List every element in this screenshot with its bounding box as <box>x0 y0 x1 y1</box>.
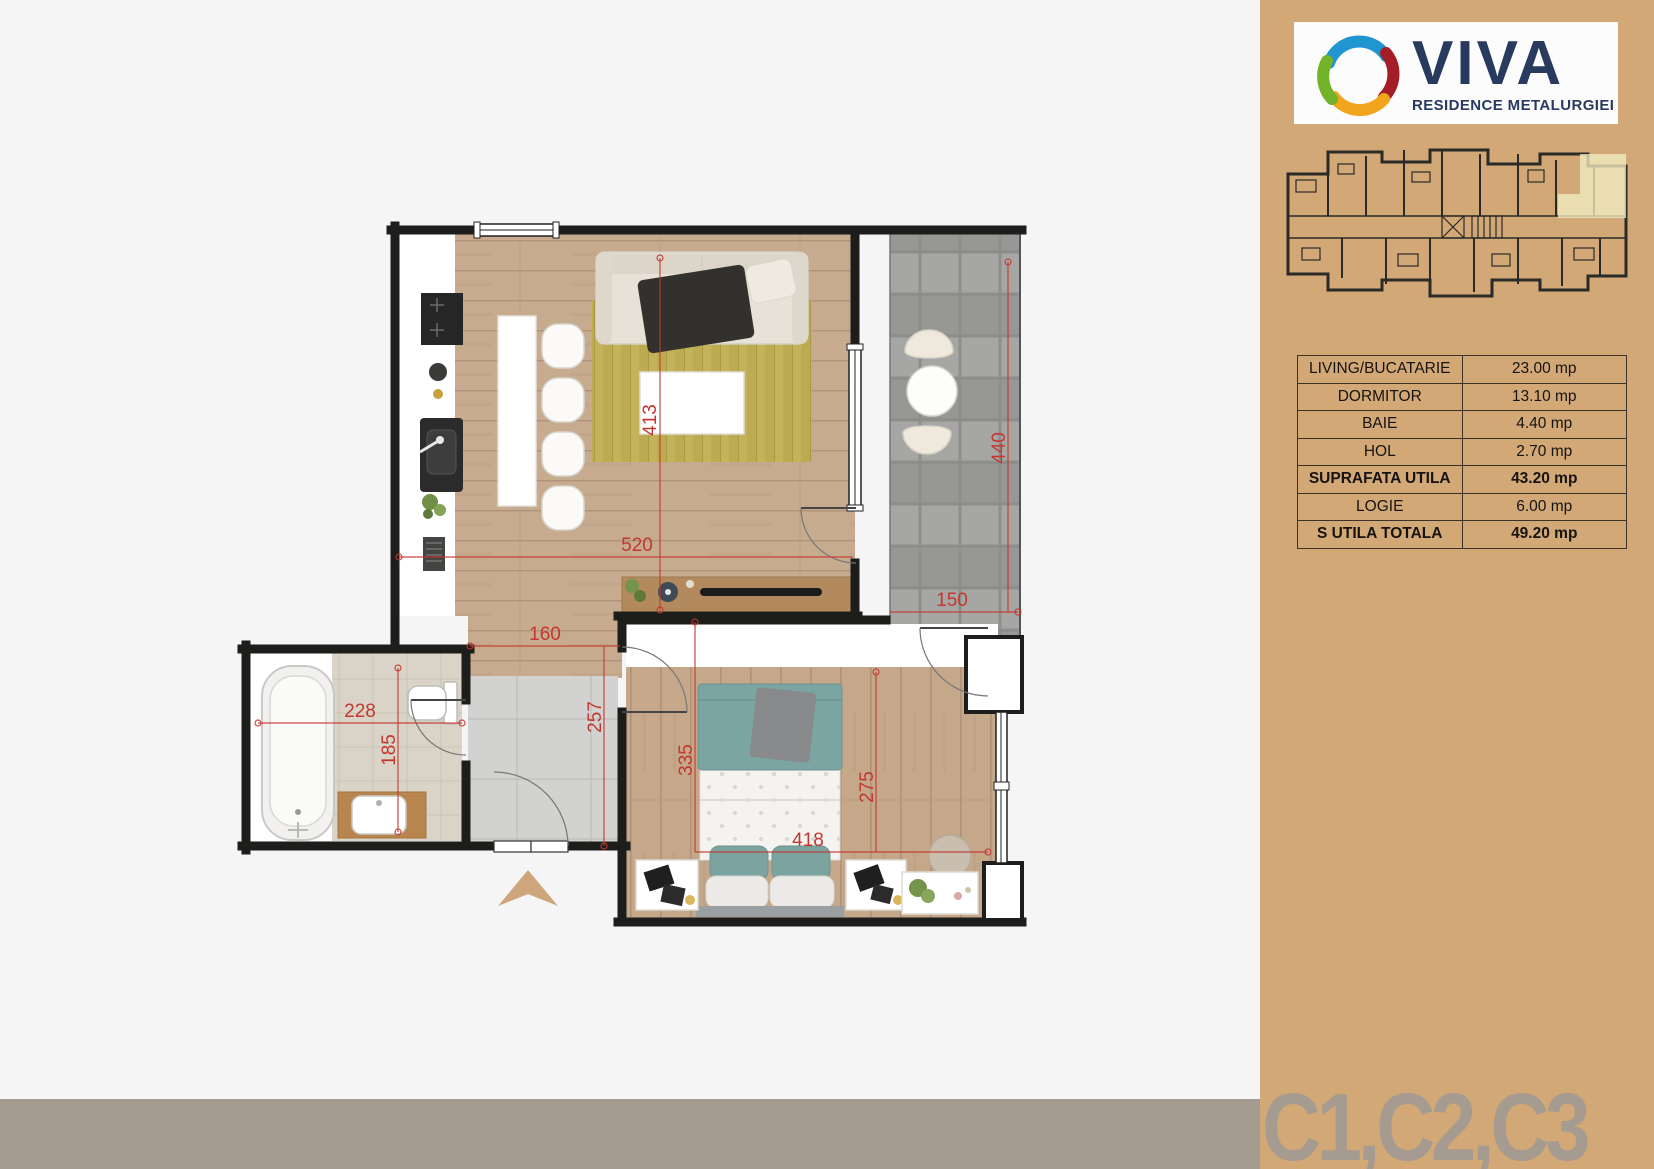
headboard <box>696 906 844 917</box>
sidebar: VIVA RESIDENCE METALURGIEI <box>1260 0 1654 1169</box>
brand-tagline: RESIDENCE METALURGIEI <box>1412 97 1614 114</box>
bench <box>902 872 978 914</box>
room-label: LIVING/BUCATARIE <box>1298 356 1463 383</box>
dimension-label: 335 <box>676 744 697 776</box>
floor-plan: 413 520 440 150 160 257 228 185 335 275 … <box>0 0 1260 1169</box>
room-area: 6.00 mp <box>1463 494 1627 521</box>
radiator <box>423 537 445 571</box>
dimension-label: 150 <box>936 590 968 611</box>
floor-plan-pane: 413 520 440 150 160 257 228 185 335 275 … <box>0 0 1260 1169</box>
room-label: HOL <box>1298 439 1463 466</box>
table-row: SUPRAFATA UTILA 43.20 mp <box>1298 466 1626 494</box>
dimension-label: 520 <box>621 535 653 556</box>
room-area: 49.20 mp <box>1463 521 1627 548</box>
dining-chair <box>542 486 584 530</box>
sink-vanity <box>338 792 426 838</box>
table-row: BAIE 4.40 mp <box>1298 411 1626 439</box>
table-row: LOGIE 6.00 mp <box>1298 494 1626 522</box>
page: 413 520 440 150 160 257 228 185 335 275 … <box>0 0 1654 1169</box>
window <box>994 712 1009 863</box>
tv <box>700 588 822 596</box>
room-area: 13.10 mp <box>1463 384 1627 411</box>
room-area: 43.20 mp <box>1463 466 1627 493</box>
dimension-label: 275 <box>857 771 878 803</box>
pillow <box>710 846 768 880</box>
dimension-label: 185 <box>379 734 400 766</box>
dimension-label: 257 <box>585 701 606 733</box>
area-table: LIVING/BUCATARIE 23.00 mp DORMITOR 13.10… <box>1297 355 1627 549</box>
room-area: 2.70 mp <box>1463 439 1627 466</box>
cooktop <box>421 293 463 345</box>
dining-chair <box>542 324 584 368</box>
room-label: LOGIE <box>1298 494 1463 521</box>
brand-swirl-icon <box>1302 23 1402 123</box>
table-row: S UTILA TOTALA 49.20 mp <box>1298 521 1626 548</box>
bathtub <box>262 666 334 840</box>
kitchen-sink <box>420 418 463 492</box>
balcony-table <box>907 366 957 416</box>
north-arrow-icon <box>498 870 558 906</box>
dimension-label: 440 <box>989 432 1010 464</box>
table-row: HOL 2.70 mp <box>1298 439 1626 467</box>
room-label: S UTILA TOTALA <box>1298 521 1463 548</box>
nightstand-left <box>636 860 698 910</box>
unit-label: C1,C2,C3 <box>1262 1080 1586 1169</box>
dimension-label: 418 <box>792 830 824 851</box>
dimension-label: 160 <box>529 624 561 645</box>
window <box>474 222 559 238</box>
dining-chair <box>542 378 584 422</box>
wall-pier <box>984 863 1022 920</box>
coffee-maker <box>429 363 447 381</box>
building-floor-overview <box>1282 144 1634 306</box>
dining-chair <box>542 432 584 476</box>
table-row: DORMITOR 13.10 mp <box>1298 384 1626 412</box>
window <box>847 344 863 511</box>
table-row: LIVING/BUCATARIE 23.00 mp <box>1298 356 1626 384</box>
highlighted-unit <box>1558 154 1626 218</box>
brand-logo: VIVA RESIDENCE METALURGIEI <box>1294 22 1618 124</box>
wall-pier <box>966 637 1022 712</box>
side-table <box>929 835 971 877</box>
tv-console <box>622 577 853 612</box>
room-label: SUPRAFATA UTILA <box>1298 466 1463 493</box>
room-label: BAIE <box>1298 411 1463 438</box>
toilet <box>408 682 457 724</box>
pillow <box>772 846 830 880</box>
room-area: 4.40 mp <box>1463 411 1627 438</box>
room-label: DORMITOR <box>1298 384 1463 411</box>
nightstand-right <box>846 860 906 910</box>
pillow <box>706 876 768 908</box>
sofa <box>596 252 808 354</box>
room-area: 23.00 mp <box>1463 356 1627 383</box>
brand-name: VIVA <box>1412 33 1614 95</box>
dimension-label: 228 <box>344 701 376 722</box>
dimension-label: 413 <box>640 404 661 436</box>
pillow <box>770 876 834 908</box>
